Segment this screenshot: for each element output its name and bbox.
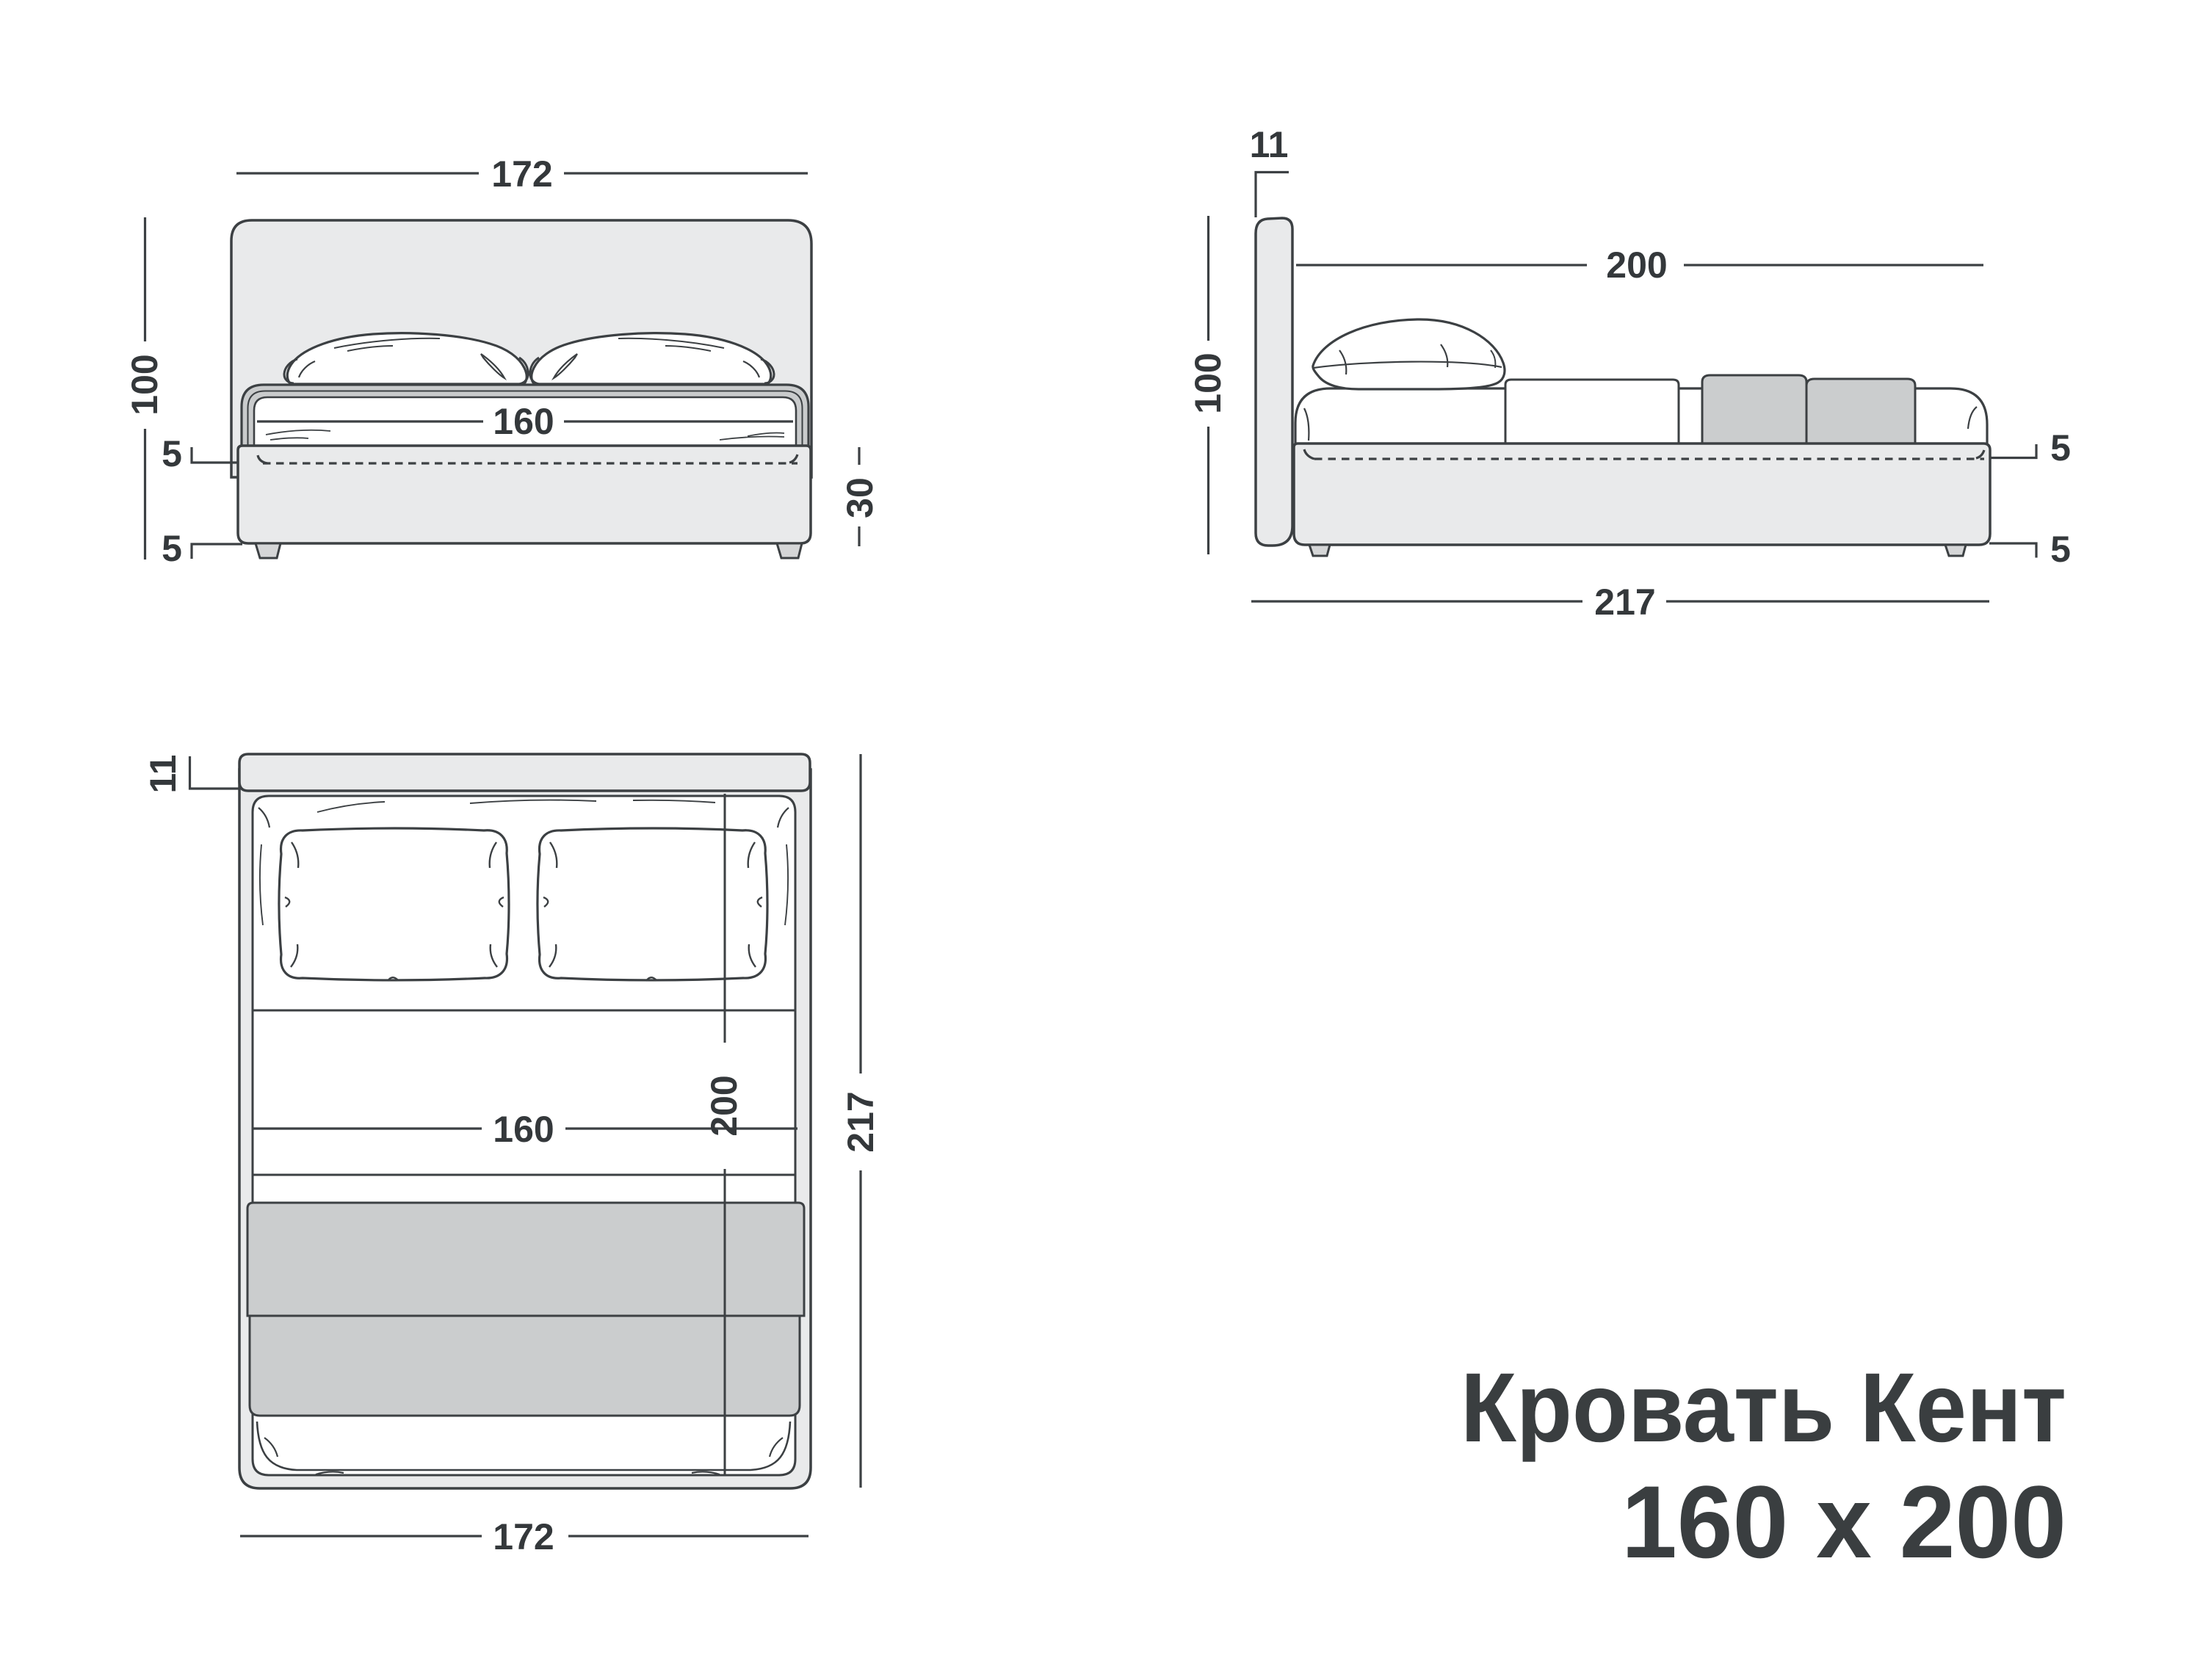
svg-text:160: 160 xyxy=(493,401,554,442)
svg-text:200: 200 xyxy=(703,1075,745,1136)
svg-text:11: 11 xyxy=(142,755,184,794)
svg-text:5: 5 xyxy=(162,433,182,474)
svg-text:160 x 200: 160 x 200 xyxy=(1621,1464,2066,1579)
svg-text:100: 100 xyxy=(1187,352,1229,413)
svg-text:5: 5 xyxy=(162,528,182,569)
svg-text:160: 160 xyxy=(493,1109,554,1150)
svg-text:217: 217 xyxy=(840,1091,881,1152)
svg-text:5: 5 xyxy=(2050,427,2071,468)
svg-text:217: 217 xyxy=(1594,582,1655,623)
svg-text:5: 5 xyxy=(2050,529,2071,570)
svg-text:30: 30 xyxy=(839,477,880,518)
svg-text:200: 200 xyxy=(1606,245,1667,286)
svg-text:172: 172 xyxy=(491,153,552,195)
svg-text:172: 172 xyxy=(493,1516,554,1557)
svg-text:11: 11 xyxy=(1250,124,1289,165)
svg-text:Кровать Кент: Кровать Кент xyxy=(1461,1353,2066,1463)
svg-text:100: 100 xyxy=(124,354,165,415)
